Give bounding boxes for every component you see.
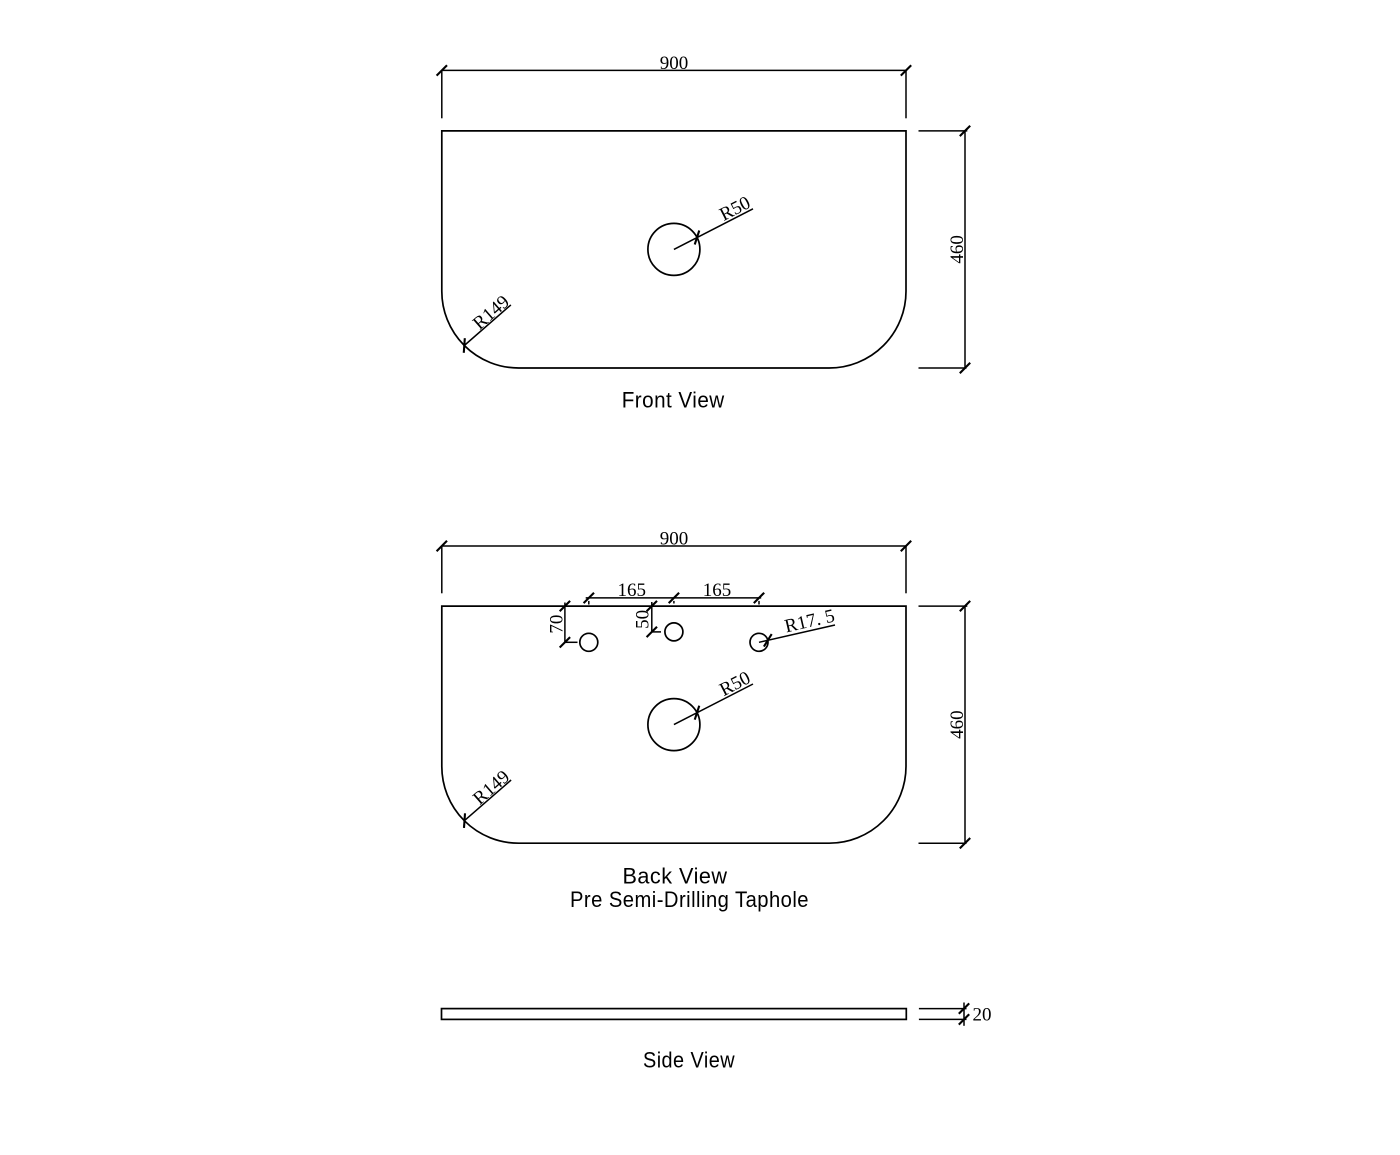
svg-text:R17. 5: R17. 5	[783, 605, 837, 637]
svg-text:460: 460	[947, 710, 968, 739]
svg-text:Front View: Front View	[622, 388, 725, 413]
svg-text:Side View: Side View	[643, 1047, 735, 1072]
svg-text:R149: R149	[469, 766, 514, 809]
svg-text:20: 20	[973, 1004, 992, 1025]
svg-text:165: 165	[703, 580, 732, 601]
svg-text:900: 900	[660, 53, 689, 74]
svg-text:Back View: Back View	[623, 864, 728, 889]
svg-text:Pre Semi-Drilling Taphole: Pre Semi-Drilling Taphole	[570, 887, 809, 912]
svg-text:R149: R149	[469, 291, 514, 334]
svg-text:460: 460	[947, 235, 968, 264]
svg-text:R50: R50	[716, 192, 754, 225]
svg-text:R50: R50	[716, 668, 754, 701]
svg-text:50: 50	[633, 610, 654, 629]
svg-text:900: 900	[660, 529, 689, 550]
svg-text:70: 70	[547, 615, 568, 634]
svg-text:165: 165	[617, 580, 646, 601]
